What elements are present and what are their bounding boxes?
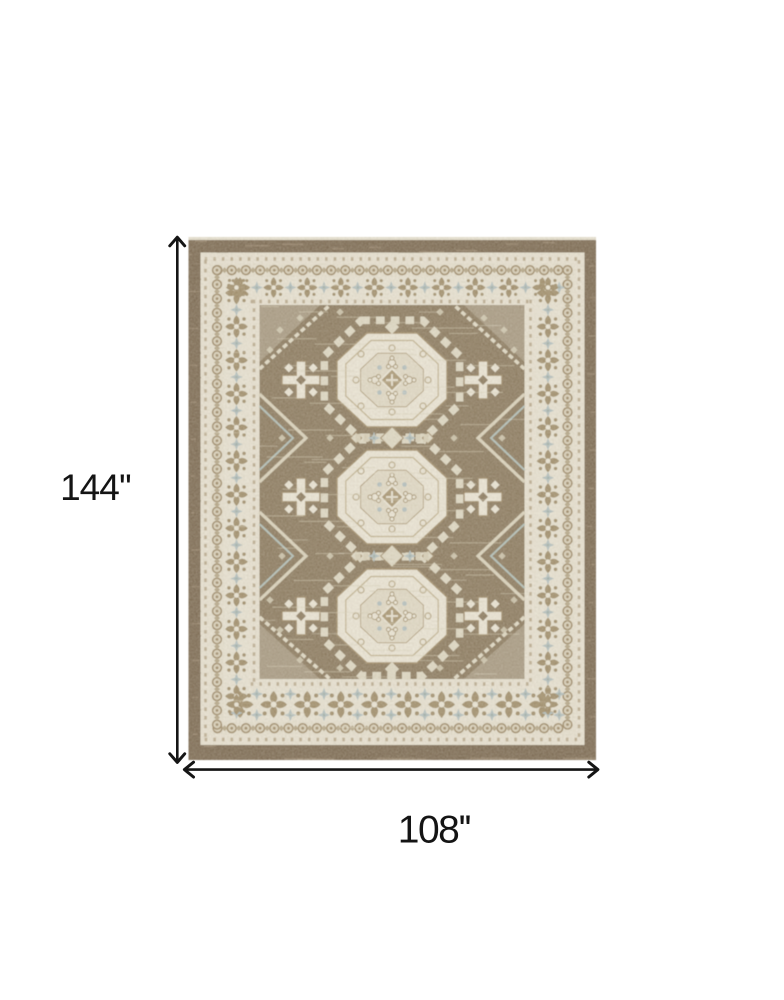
svg-text:144'': 144'' — [60, 467, 131, 508]
svg-text:108'': 108'' — [398, 809, 471, 852]
